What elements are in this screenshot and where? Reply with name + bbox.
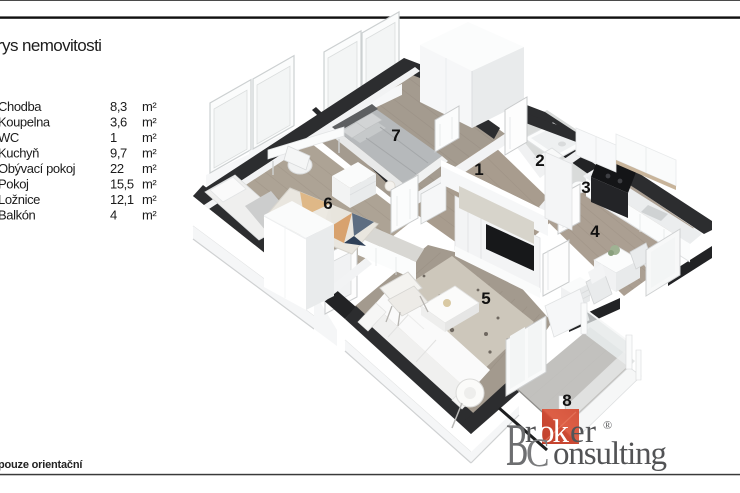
svg-text:5: 5 xyxy=(481,289,490,308)
svg-text:m²: m² xyxy=(142,161,157,176)
svg-text:Balkón: Balkón xyxy=(0,208,36,223)
svg-text:m²: m² xyxy=(142,208,157,223)
svg-text:1: 1 xyxy=(110,130,117,145)
svg-text:Koupelna: Koupelna xyxy=(0,115,51,130)
svg-text:3: 3 xyxy=(581,178,590,197)
svg-text:1: 1 xyxy=(474,160,483,179)
svg-text:m²: m² xyxy=(142,115,157,130)
svg-text:m²: m² xyxy=(142,130,157,145)
svg-text:Kuchyň: Kuchyň xyxy=(0,146,39,161)
svg-text:12,1: 12,1 xyxy=(110,192,134,207)
svg-text:m²: m² xyxy=(142,177,157,192)
svg-text:m²: m² xyxy=(142,192,157,207)
svg-text:C: C xyxy=(526,431,549,476)
svg-text:22: 22 xyxy=(110,161,124,176)
svg-text:15,5: 15,5 xyxy=(110,177,134,192)
svg-text:9,7: 9,7 xyxy=(110,146,127,161)
svg-text:2: 2 xyxy=(535,151,544,170)
svg-text:WC: WC xyxy=(0,130,19,145)
svg-text:7: 7 xyxy=(391,126,400,145)
svg-text:Ložnice: Ložnice xyxy=(0,192,40,207)
svg-text:4: 4 xyxy=(590,222,600,241)
svg-text:4: 4 xyxy=(110,208,117,223)
svg-text:Pokoj: Pokoj xyxy=(0,177,29,192)
svg-text:rys nemovitosti: rys nemovitosti xyxy=(0,36,101,55)
svg-text:6: 6 xyxy=(323,194,332,213)
svg-text:Obývací pokoj: Obývací pokoj xyxy=(0,161,76,176)
svg-text:®: ® xyxy=(603,418,612,432)
svg-text:m²: m² xyxy=(142,99,157,114)
svg-text:onsulting: onsulting xyxy=(553,436,667,472)
svg-text:8,3: 8,3 xyxy=(110,99,127,114)
svg-text:pouze orientační: pouze orientační xyxy=(0,459,83,471)
svg-text:3,6: 3,6 xyxy=(110,115,127,130)
svg-text:Chodba: Chodba xyxy=(0,99,42,114)
svg-text:m²: m² xyxy=(142,146,157,161)
svg-text:8: 8 xyxy=(562,391,571,410)
